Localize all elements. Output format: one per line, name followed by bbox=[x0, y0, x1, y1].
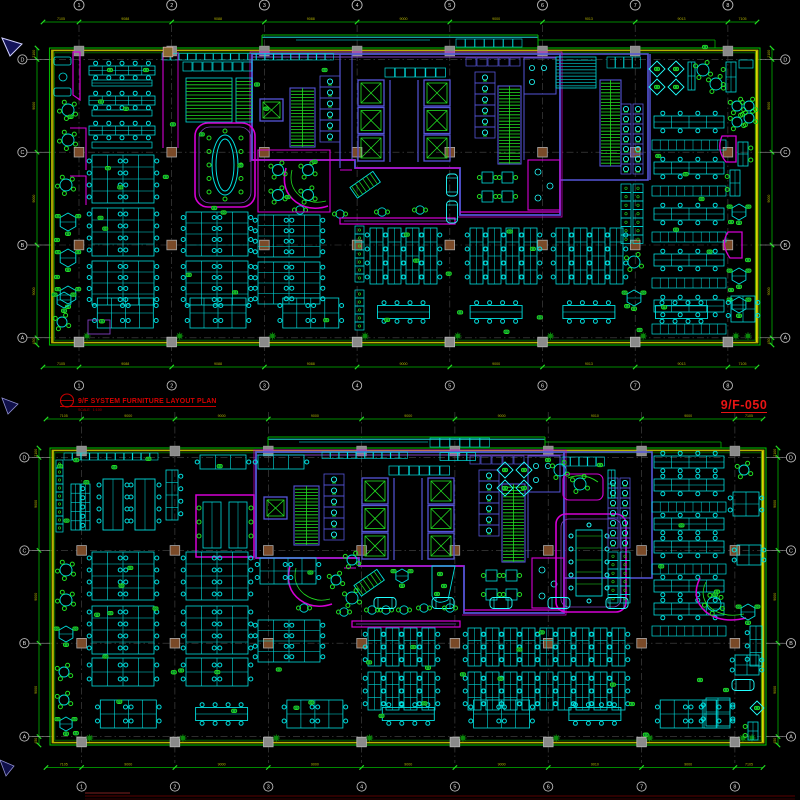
svg-text:6: 6 bbox=[541, 3, 544, 9]
svg-text:C: C bbox=[789, 548, 793, 554]
svg-text:9000: 9000 bbox=[767, 102, 771, 110]
svg-text:9000: 9000 bbox=[32, 195, 36, 203]
svg-text:9000: 9000 bbox=[124, 762, 132, 766]
svg-text:4: 4 bbox=[360, 785, 363, 791]
svg-text:9088: 9088 bbox=[214, 17, 222, 21]
svg-text:SCALE 1:100: SCALE 1:100 bbox=[78, 408, 102, 412]
svg-text:2: 2 bbox=[173, 785, 176, 791]
svg-text:2: 2 bbox=[170, 3, 173, 9]
svg-text:9000: 9000 bbox=[34, 500, 38, 508]
svg-text:9/F-050: 9/F-050 bbox=[721, 398, 768, 412]
svg-text:9000: 9000 bbox=[218, 762, 226, 766]
svg-text:450: 450 bbox=[34, 738, 38, 744]
svg-text:C: C bbox=[22, 548, 26, 554]
svg-text:9000: 9000 bbox=[400, 17, 408, 21]
svg-text:9000: 9000 bbox=[32, 287, 36, 295]
svg-text:9000: 9000 bbox=[404, 762, 412, 766]
svg-text:6: 6 bbox=[541, 383, 544, 389]
svg-text:7105: 7105 bbox=[57, 362, 65, 366]
svg-text:9000: 9000 bbox=[400, 362, 408, 366]
svg-text:7105: 7105 bbox=[739, 17, 747, 21]
svg-text:4: 4 bbox=[356, 3, 359, 9]
svg-text:C: C bbox=[20, 150, 24, 156]
svg-text:9000: 9000 bbox=[684, 414, 692, 418]
svg-text:9000: 9000 bbox=[124, 414, 132, 418]
svg-text:A: A bbox=[21, 336, 25, 342]
svg-text:7105: 7105 bbox=[57, 17, 65, 21]
svg-text:9000: 9000 bbox=[34, 686, 38, 694]
svg-text:7: 7 bbox=[634, 383, 637, 389]
svg-text:7105: 7105 bbox=[739, 362, 747, 366]
svg-text:7105: 7105 bbox=[60, 762, 68, 766]
svg-text:1: 1 bbox=[78, 3, 81, 9]
svg-text:7: 7 bbox=[634, 3, 637, 9]
svg-text:9000: 9000 bbox=[311, 762, 319, 766]
svg-text:450: 450 bbox=[32, 338, 36, 344]
svg-text:9000: 9000 bbox=[311, 414, 319, 418]
svg-text:D: D bbox=[22, 455, 26, 461]
svg-text:9088: 9088 bbox=[307, 362, 315, 366]
svg-text:1: 1 bbox=[80, 785, 83, 791]
svg-text:2: 2 bbox=[170, 383, 173, 389]
svg-text:B: B bbox=[23, 641, 27, 647]
svg-text:9010: 9010 bbox=[591, 762, 599, 766]
svg-text:7105: 7105 bbox=[745, 762, 753, 766]
svg-text:9088: 9088 bbox=[214, 362, 222, 366]
svg-text:D: D bbox=[20, 57, 24, 63]
svg-text:9000: 9000 bbox=[684, 762, 692, 766]
svg-text:9088: 9088 bbox=[121, 17, 129, 21]
svg-text:D: D bbox=[783, 57, 787, 63]
svg-text:5: 5 bbox=[448, 3, 451, 9]
svg-text:8: 8 bbox=[726, 383, 729, 389]
svg-text:7105: 7105 bbox=[745, 414, 753, 418]
svg-text:A: A bbox=[783, 336, 787, 342]
svg-text:9000: 9000 bbox=[492, 17, 500, 21]
svg-text:9088: 9088 bbox=[121, 362, 129, 366]
svg-text:9000: 9000 bbox=[498, 414, 506, 418]
svg-text:9000: 9000 bbox=[492, 362, 500, 366]
svg-text:9000: 9000 bbox=[218, 414, 226, 418]
svg-text:B: B bbox=[783, 243, 787, 249]
svg-text:2100: 2100 bbox=[32, 50, 36, 58]
svg-text:9000: 9000 bbox=[32, 102, 36, 110]
svg-text:8: 8 bbox=[733, 785, 736, 791]
svg-text:9000: 9000 bbox=[404, 414, 412, 418]
svg-text:7: 7 bbox=[640, 785, 643, 791]
svg-text:A: A bbox=[789, 735, 793, 741]
svg-text:9013: 9013 bbox=[585, 17, 593, 21]
svg-text:9000: 9000 bbox=[34, 593, 38, 601]
svg-text:7105: 7105 bbox=[60, 414, 68, 418]
svg-text:8: 8 bbox=[726, 3, 729, 9]
svg-text:3: 3 bbox=[267, 785, 270, 791]
svg-text:6: 6 bbox=[547, 785, 550, 791]
svg-text:9000: 9000 bbox=[773, 686, 777, 694]
svg-text:B: B bbox=[21, 243, 25, 249]
svg-text:9000: 9000 bbox=[773, 500, 777, 508]
svg-text:9013: 9013 bbox=[585, 362, 593, 366]
svg-text:450: 450 bbox=[767, 338, 771, 344]
svg-text:2100: 2100 bbox=[767, 50, 771, 58]
svg-text:2100: 2100 bbox=[773, 449, 777, 457]
svg-text:2100: 2100 bbox=[34, 449, 38, 457]
svg-text:4: 4 bbox=[356, 383, 359, 389]
svg-text:5: 5 bbox=[448, 383, 451, 389]
svg-text:B: B bbox=[789, 641, 793, 647]
svg-text:9000: 9000 bbox=[773, 593, 777, 601]
svg-text:A: A bbox=[23, 735, 27, 741]
svg-text:D: D bbox=[789, 455, 793, 461]
svg-text:9000: 9000 bbox=[767, 287, 771, 295]
svg-text:9010: 9010 bbox=[591, 414, 599, 418]
svg-text:9013: 9013 bbox=[678, 362, 686, 366]
svg-text:450: 450 bbox=[773, 738, 777, 744]
svg-text:9000: 9000 bbox=[767, 195, 771, 203]
svg-text:5: 5 bbox=[453, 785, 456, 791]
svg-text:9013: 9013 bbox=[678, 17, 686, 21]
svg-text:3: 3 bbox=[263, 383, 266, 389]
svg-text:9088: 9088 bbox=[307, 17, 315, 21]
svg-text:3: 3 bbox=[263, 3, 266, 9]
svg-text:C: C bbox=[783, 150, 787, 156]
svg-text:9/F SYSTEM FURNITURE LAYOUT PL: 9/F SYSTEM FURNITURE LAYOUT PLAN bbox=[78, 398, 217, 405]
svg-text:1: 1 bbox=[78, 383, 81, 389]
svg-text:9000: 9000 bbox=[498, 762, 506, 766]
